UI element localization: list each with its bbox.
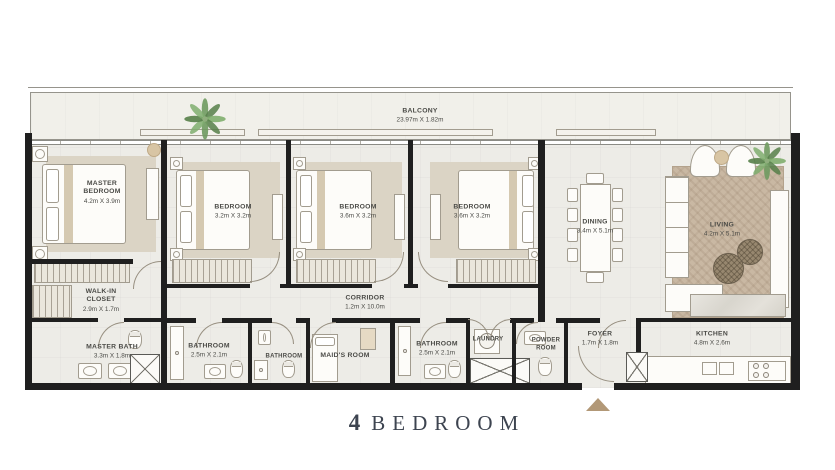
room-dims: 1.7m X 1.8m: [570, 340, 630, 348]
room-label-bathroom-2: BATHROOM: [256, 353, 312, 361]
room-label-kitchen: KITCHEN 4.8m X 2.6m: [677, 330, 747, 347]
nightstand: [293, 157, 306, 170]
toilet: [448, 360, 461, 378]
nightstand: [170, 157, 183, 170]
room-dims: 4.2m X 3.9m: [73, 198, 131, 206]
room-label-balcony: BALCONY 23.97m X 1.82m: [360, 107, 480, 124]
closet-wardrobe: [32, 285, 72, 318]
room-dims: 3.6m X 3.2m: [318, 213, 398, 221]
wall: [556, 318, 600, 323]
room-name: LIVING: [682, 221, 762, 229]
room-dims: 3.6m X 3.2m: [432, 213, 512, 221]
room-dims: 2.5m X 2.1m: [169, 352, 249, 360]
wall: [25, 318, 98, 322]
wardrobe: [172, 259, 252, 283]
room-label-bedroom-2: BEDROOM 3.2m X 3.2m: [193, 203, 273, 220]
dresser: [272, 194, 283, 240]
room-dims: 1.2m X 10.0m: [320, 304, 410, 312]
room-label-powder-room: POWDER ROOM: [526, 338, 566, 353]
bathroom-sink: [258, 330, 271, 345]
room-name: MAID'S ROOM: [306, 352, 384, 360]
wall: [25, 259, 133, 264]
kitchen-island: [690, 294, 786, 317]
dining-chair: [612, 188, 623, 202]
room-name: LAUNDRY: [465, 336, 511, 344]
room-label-corridor: CORRIDOR 1.2m X 10.0m: [320, 294, 410, 311]
dining-chair: [586, 173, 604, 184]
entrance-arrow-icon: [586, 398, 610, 411]
dresser: [146, 168, 159, 220]
room-label-bedroom-3: BEDROOM 3.6m X 3.2m: [318, 203, 398, 220]
wall: [564, 318, 568, 390]
wall: [448, 284, 538, 288]
room-label-laundry: LAUNDRY: [465, 336, 511, 344]
tall-cabinet: [770, 190, 789, 308]
room-dims: 4.2m X 5.1m: [682, 231, 762, 239]
dining-chair: [567, 188, 578, 202]
maid-wardrobe: [360, 328, 376, 350]
wall: [222, 318, 272, 323]
pillow: [46, 169, 59, 203]
room-dims: 2.9m X 1.7m: [75, 306, 127, 314]
room-dims: 3.4m X 5.1m: [555, 228, 635, 236]
plan-title: 4 BEDROOM: [349, 410, 526, 436]
bathroom-sink: [78, 363, 102, 379]
pillow: [300, 175, 312, 207]
drain: [259, 368, 263, 372]
room-dims: 3.2m X 3.2m: [193, 213, 273, 221]
wall: [161, 140, 167, 390]
burner: [763, 372, 769, 378]
bed-runner: [64, 165, 73, 243]
room-label-bedroom-4: BEDROOM 3.6m X 3.2m: [432, 203, 512, 220]
toilet: [538, 357, 552, 376]
wall: [390, 318, 395, 390]
wall: [280, 284, 372, 288]
pillow: [180, 211, 192, 243]
wall: [538, 140, 545, 322]
dining-chair: [567, 248, 578, 262]
toilet: [282, 360, 295, 378]
room-dims: 2.5m X 2.1m: [397, 350, 477, 358]
dining-chair: [612, 248, 623, 262]
plan-title-text: BEDROOM: [371, 411, 525, 436]
kitchen-sink: [719, 362, 734, 375]
wall: [286, 140, 291, 288]
room-name: KITCHEN: [677, 330, 747, 338]
ottoman: [713, 253, 744, 284]
pillow: [300, 211, 312, 243]
room-label-maids-room: MAID'S ROOM: [306, 352, 384, 360]
wardrobe: [456, 259, 536, 283]
balcony-planter: [556, 129, 656, 136]
room-name: BEDROOM: [318, 203, 398, 211]
balcony-planter: [258, 129, 493, 136]
room-name: DINING: [555, 218, 635, 226]
room-name: WALK-IN CLOSET: [75, 288, 127, 305]
foyer-closet: [626, 352, 648, 382]
pillow: [522, 175, 534, 207]
room-name: BEDROOM: [193, 203, 273, 211]
wall: [124, 318, 163, 322]
wall: [791, 133, 800, 390]
wall: [167, 284, 250, 288]
nightstand: [32, 146, 48, 162]
room-label-bathroom-1: BATHROOM 2.5m X 2.1m: [169, 342, 249, 359]
room-label-living: LIVING 4.2m X 5.1m: [682, 221, 762, 238]
room-name: BALCONY: [360, 107, 480, 115]
wall: [167, 318, 196, 323]
bathroom-sink: [424, 364, 446, 379]
burner: [753, 363, 759, 369]
palm-plant-icon: [746, 140, 788, 182]
bathroom-sink: [108, 363, 132, 379]
wall: [446, 318, 468, 323]
bathroom-sink: [204, 364, 226, 379]
wall: [25, 383, 582, 390]
room-name: BEDROOM: [432, 203, 512, 211]
room-dims: 23.97m X 1.82m: [360, 117, 480, 125]
room-dims: 3.3m X 1.8m: [67, 353, 157, 361]
wall: [636, 318, 641, 352]
wall: [638, 318, 791, 322]
room-name: BATHROOM: [256, 353, 312, 361]
wall: [614, 383, 800, 390]
floor-plan: BALCONY 23.97m X 1.82m MASTER BEDROOM 4.…: [0, 0, 835, 470]
wall: [512, 318, 516, 390]
pillow: [522, 211, 534, 243]
room-label-foyer: FOYER 1.7m X 1.8m: [570, 330, 630, 347]
room-label-dining: DINING 3.4m X 5.1m: [555, 218, 635, 235]
room-name: MASTER BATH: [67, 343, 157, 351]
shower-stall: [254, 360, 268, 380]
wall: [404, 284, 418, 288]
room-name: CORRIDOR: [320, 294, 410, 302]
palm-plant-icon: [182, 96, 228, 142]
kitchen-sink: [702, 362, 717, 375]
wall: [408, 140, 413, 288]
service-shaft: [470, 358, 530, 384]
side-table: [147, 143, 161, 157]
balcony-rail: [28, 87, 793, 89]
room-name: MASTER BEDROOM: [73, 180, 131, 197]
room-name: POWDER ROOM: [526, 338, 566, 353]
burner: [753, 372, 759, 378]
wall: [296, 318, 306, 323]
room-name: BATHROOM: [169, 342, 249, 350]
toilet: [230, 360, 243, 378]
pillow: [46, 207, 59, 241]
plan-title-number: 4: [349, 410, 361, 436]
closet-wardrobe: [34, 263, 130, 283]
room-label-master-bath: MASTER BATH 3.3m X 1.8m: [67, 343, 157, 360]
wardrobe: [296, 259, 376, 283]
room-name: FOYER: [570, 330, 630, 338]
burner: [763, 363, 769, 369]
room-label-walk-in-closet: WALK-IN CLOSET 2.9m X 1.7m: [75, 288, 127, 314]
pillow: [180, 175, 192, 207]
room-label-master-bedroom: MASTER BEDROOM 4.2m X 3.9m: [73, 180, 131, 206]
room-dims: 4.8m X 2.6m: [677, 340, 747, 348]
coffee-table: [714, 150, 729, 165]
dining-chair: [586, 272, 604, 283]
wall: [332, 318, 420, 323]
